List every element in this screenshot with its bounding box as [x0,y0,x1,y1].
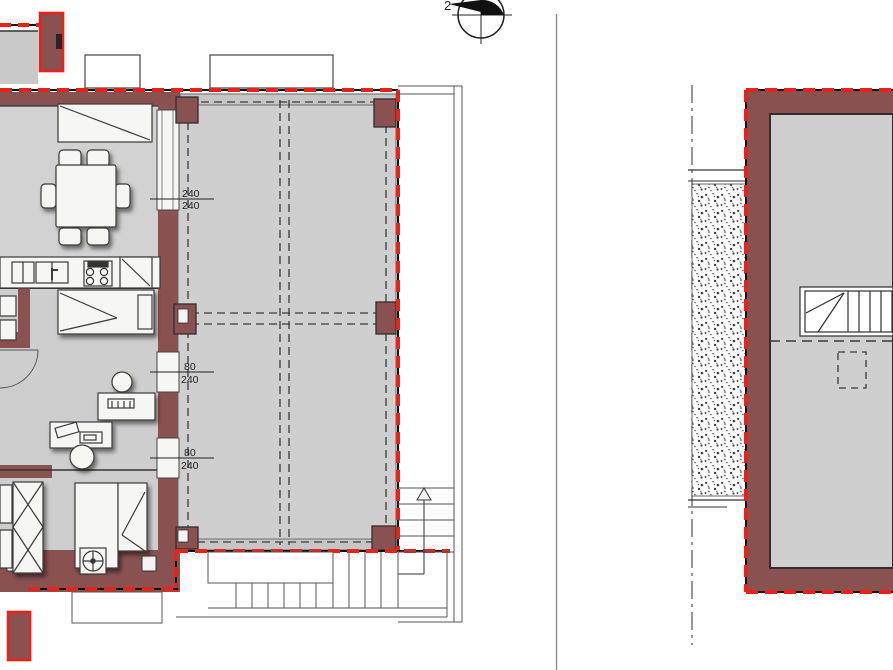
pillar-notch [56,34,62,49]
beam-bottom [180,539,396,550]
bay-window [85,55,140,88]
gravel-hatch [692,184,746,496]
side-mattress [118,483,147,551]
boiler-symbol [80,548,106,574]
new-hall-floor [178,94,396,546]
dim-c-den: 240 [181,460,199,472]
dim-a-num: 240 [182,188,200,200]
kitchen-counter [0,257,160,288]
dim-b-num: 80 [184,361,196,373]
bay-window [210,55,333,88]
double-bed [58,290,154,334]
floor-plan-canvas: 2 [0,0,893,670]
right-floor-plan [688,85,893,645]
north-compass-icon: 2 [444,0,512,44]
external-staircase-right [398,488,454,574]
left-floor-plan: 240 240 80 240 80 240 [0,13,462,660]
desk-chair [70,445,94,469]
pillar-notch [178,530,188,542]
new-pillar-block [8,612,30,660]
window-opening [157,110,179,210]
top-exterior [0,13,333,88]
wall-niche [142,556,156,571]
terrace-patch [0,31,38,84]
dim-a-den: 240 [182,200,200,212]
dim-b-den: 240 [181,374,199,386]
stove [84,261,112,286]
stair-up-arrow [417,488,431,500]
beam-top [180,94,396,105]
partition-wall [0,465,52,478]
terrace-and-right-stair [398,86,462,622]
floor-plan-drawing: 2 [0,0,893,670]
internal-staircase [800,287,893,336]
desk-chair [112,372,132,392]
compass-label: 2 [444,0,451,13]
wardrobe [13,482,43,573]
dim-c-num: 80 [184,447,196,459]
pillar-notch [178,309,188,323]
